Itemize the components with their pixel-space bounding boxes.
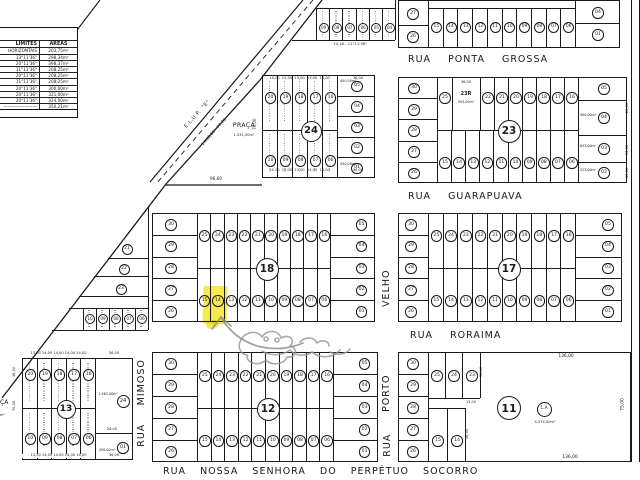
wall-line (337, 75, 338, 178)
wall-line (447, 408, 448, 462)
lot-number: 16 (566, 92, 578, 104)
wall-line (564, 130, 565, 183)
lot-number: 30 (407, 358, 419, 370)
wall-line (152, 257, 197, 258)
wall-line (493, 130, 494, 183)
lot-number: 29 (408, 104, 420, 116)
wall-line (337, 157, 375, 158)
wall-line (531, 8, 532, 48)
lot-number: 25 (431, 230, 443, 242)
block-number: 11 (497, 396, 521, 420)
lot-number: 07 (68, 433, 80, 445)
lot-number: 19 (281, 370, 293, 382)
street-name-mimoso-rua: RUA (137, 420, 147, 450)
lot-number: 15 (439, 157, 451, 169)
wall-line (575, 278, 622, 279)
area-value: 350,21m² (40, 104, 77, 109)
lot-number: 08 (295, 155, 307, 167)
wall-line (575, 213, 576, 322)
wall-line (292, 75, 293, 178)
praca-area-label: 1.531,00m² (224, 134, 264, 138)
lot-number: 11 (489, 295, 501, 307)
lot-number: 04 (385, 23, 395, 33)
lot-number: 03 (359, 402, 371, 414)
block-number: 18 (256, 258, 279, 281)
wall-line (148, 207, 149, 330)
wall-line (398, 162, 437, 163)
lot-number: 08 (534, 22, 545, 33)
wall-line (251, 352, 252, 462)
wall-line (398, 235, 428, 236)
block-number: 12 (257, 398, 280, 421)
lot-number: 15 (432, 435, 444, 447)
lot-number: 03 (351, 122, 363, 134)
lot-number: 10 (265, 295, 277, 307)
lot-number: 22 (475, 230, 487, 242)
wall-line (197, 352, 198, 462)
lot-number: 18 (295, 92, 307, 104)
wall-line (333, 418, 378, 419)
lot-number: 17 (310, 92, 322, 104)
wall-line (152, 300, 197, 301)
wall-line (80, 358, 81, 460)
lot-number: 18 (54, 369, 66, 381)
wall-line (52, 330, 148, 331)
areas-table-row: 20°11'36"398,37m² (0, 60, 77, 66)
wall-line (238, 352, 239, 462)
lot-number: 04 (351, 101, 363, 113)
lot-number: 20 (265, 92, 277, 104)
area-value: 208,25m² (40, 73, 77, 78)
lot-area-label: 4.274,00m² (530, 421, 560, 425)
lot-number: 30 (165, 219, 177, 231)
lot-number: 13 (468, 157, 480, 169)
wall-line (224, 352, 225, 462)
lot-number: 24 (448, 370, 460, 382)
areas-table-title-band (0, 28, 77, 40)
lot-number: 07 (345, 23, 355, 33)
wall-line (398, 257, 428, 258)
limites-value: 20°11'36" (0, 98, 40, 103)
lot-number: 27 (408, 146, 420, 158)
wall-line (369, 8, 370, 40)
wall-line (51, 358, 52, 460)
lot-number: 16 (83, 369, 95, 381)
lot-number: 07 (308, 435, 320, 447)
areas-table-row: ————————350,21m² (0, 103, 77, 109)
area-value: 398,37m² (40, 61, 77, 66)
lot-number: 21 (253, 370, 265, 382)
dimension-label: 14,10 13,00 13,00 13,00 13,00 (263, 169, 336, 173)
lot-number: 29 (165, 380, 177, 392)
lot-number: 04 (359, 380, 371, 392)
lot-number: 24 (445, 230, 457, 242)
lot-number: 05 (598, 83, 610, 95)
lot-number: 01 (592, 29, 604, 41)
area-value: 300,00m² (40, 86, 77, 91)
wall-line (277, 75, 278, 178)
wall-line (152, 440, 197, 441)
wall-line (451, 130, 452, 183)
dimension-label: 36,00 (13, 361, 17, 383)
areas-table-row: 20°11'36"321,00m² (0, 91, 77, 97)
lot-number: 21 (496, 92, 508, 104)
wall-line (575, 300, 622, 301)
wall-line (443, 8, 444, 48)
lot-number: 17 (308, 370, 320, 382)
wall-line (109, 308, 110, 330)
wall-line (479, 130, 480, 183)
dimension-label: 13,00 (461, 401, 481, 405)
wall-line (152, 396, 197, 397)
wall-line (83, 308, 84, 330)
lot-number: 12 (482, 157, 494, 169)
lot-number: 17 (548, 230, 560, 242)
lot-number: 06 (83, 433, 95, 445)
wall-line (95, 358, 96, 460)
lot-number: 09 (39, 433, 51, 445)
lot-number: 25 (199, 370, 211, 382)
lot-number: 21 (122, 244, 133, 255)
lot-number: 23 (116, 284, 127, 295)
lot-number: 10 (25, 433, 37, 445)
wall-line (428, 398, 480, 399)
lot-number: 24 (212, 230, 224, 242)
lot-number: 26 (405, 306, 417, 318)
lot-area-label: 450,00m² (340, 163, 357, 167)
lot-number: 13 (226, 295, 238, 307)
lot-number: 29 (407, 380, 419, 392)
lot-number: 25 (439, 92, 451, 104)
lot-number: 22 (239, 230, 251, 242)
lot-number: 07 (310, 155, 322, 167)
lot-number: 30 (165, 358, 177, 370)
dimension-label: 136,00 (550, 456, 590, 461)
lot-number: 29 (165, 241, 177, 253)
wall-line (516, 8, 517, 48)
street-name-guarapuava: RUA GUARAPUAVA (408, 192, 523, 202)
areas-table-row: 11°11'36"208,25m² (0, 66, 77, 72)
lot-number: 08 (54, 433, 66, 445)
lot-number: 20 (510, 92, 522, 104)
block-number: 23 (498, 120, 521, 143)
limites-value: 20°11'36" (0, 61, 40, 66)
areas-table: LIMITES AREAS HORIZONTAIS203,75m²13°11'3… (0, 27, 78, 118)
wall-line (398, 396, 428, 397)
dimension-label: 13,20 14,00 14,00 14,00 14,00 (22, 454, 95, 458)
wall-line (337, 116, 375, 117)
wall-line (262, 130, 337, 131)
lot-number: 22 (482, 92, 494, 104)
lot-number: 26 (408, 168, 420, 180)
wall-line (398, 25, 428, 26)
lot-number: 04 (602, 241, 614, 253)
lot-number: 18 (534, 230, 546, 242)
lot-number: 23 (226, 370, 238, 382)
lot-number: 06 (358, 23, 368, 33)
wall-line (398, 300, 428, 301)
block-number: 17 (498, 258, 521, 281)
praca-label: PRAÇA (226, 123, 262, 130)
dimension-label: 36,00 (344, 169, 372, 173)
wall-line (578, 100, 627, 101)
elup-label: E.L.U.P. "E" (165, 79, 231, 151)
lot-number: 17 (552, 92, 564, 104)
dimension-label: 136,00 (546, 355, 586, 360)
lot-area-label: 953,00m² (452, 101, 480, 105)
street-name-ponta-grossa: RUA PONTA GROSSA (408, 55, 548, 65)
lot-number: 25 (199, 230, 211, 242)
lot-number: 23 (460, 230, 472, 242)
lot-area-label: 523,00m² (580, 169, 596, 173)
street-name-mimoso: MIMOSO (137, 357, 147, 407)
wall-line (333, 352, 334, 462)
lot-number: 19 (524, 92, 536, 104)
lot-number: 29 (405, 241, 417, 253)
lot-number: 09 (319, 23, 329, 33)
lot-number: 20 (25, 369, 37, 381)
street-name-porto-velho: VELHO (382, 263, 392, 313)
limites-value: 20°11'36" (0, 73, 40, 78)
wall-line (536, 130, 537, 183)
wall-line (330, 257, 375, 258)
wall-line (135, 308, 136, 330)
wall-line (494, 77, 495, 130)
dimension-label: 96,60 (196, 177, 236, 182)
lot-number: 06 (563, 295, 575, 307)
lot-number: 22 (119, 264, 130, 275)
lot-number: 20 (504, 230, 516, 242)
lot-number: 21 (252, 230, 264, 242)
wall-line (631, 0, 632, 462)
areas-table-row: 11°11'36"208,25m² (0, 78, 77, 84)
dimension-label: 36,00 (97, 454, 131, 458)
lot-number: 12 (239, 295, 251, 307)
lot-number: 09 (519, 295, 531, 307)
lot-number: 20 (265, 230, 277, 242)
lot-number: 06 (321, 435, 333, 447)
lot-number: 05 (356, 219, 368, 231)
wall-line (398, 98, 437, 99)
lot-number: 19 (280, 92, 292, 104)
lot-area-label: 633,00m² (580, 145, 596, 149)
limites-value: ———————— (0, 104, 40, 109)
areas-table-row: 20°11'36"208,25m² (0, 72, 77, 78)
lot-number: 13 (460, 22, 471, 33)
lot-area-label: 1.563,00m² (96, 393, 120, 397)
lot-number: 17 (68, 369, 80, 381)
wall-line (395, 0, 396, 40)
limites-value: 11°11'36" (0, 67, 40, 72)
limites-header: LIMITES (0, 41, 40, 47)
wall-line (330, 213, 331, 322)
lot-number: 16 (319, 230, 331, 242)
lot-number: 20 (267, 370, 279, 382)
lot-number: 16 (321, 370, 333, 382)
lot-number: 11 (496, 157, 508, 169)
lot-number: 23 (226, 230, 238, 242)
wall-line (152, 235, 197, 236)
lot-number: 01 (356, 306, 368, 318)
dimension-label: 36,00 (466, 423, 470, 445)
areas-table-row: 13°11'36"298,34m² (0, 54, 77, 60)
areas-header: AREAS (40, 41, 77, 47)
lot-number: 10 (504, 22, 515, 33)
wall-line (578, 135, 627, 136)
areas-table-row: HORIZONTAIS203,75m² (0, 47, 77, 53)
area-value: 203,75m² (40, 48, 77, 53)
wall-line (457, 8, 458, 48)
lot-number: 13 (460, 295, 472, 307)
limites-value: 13°11'36" (0, 55, 40, 60)
lot-number: 28 (405, 263, 417, 275)
plat-map: LIMITES AREAS HORIZONTAIS203,75m²13°11'3… (0, 0, 640, 480)
lot-number: 27 (405, 285, 417, 297)
lot-number: 02 (602, 285, 614, 297)
street-name-roraima: RUA RORAIMA (410, 331, 501, 341)
wall-line (94, 276, 148, 277)
lot-number: 28 (165, 263, 177, 275)
praca-fragment-label: ÇA (0, 400, 8, 407)
wall-line (462, 352, 463, 398)
lot-number: 11 (490, 22, 501, 33)
wall-line (337, 96, 375, 97)
dimension-label: 13,00 14,00 14,00 14,00 14,00 (22, 352, 95, 356)
wall-line (398, 278, 428, 279)
lot-number: 06 (137, 314, 148, 325)
lot-number: 15 (199, 435, 211, 447)
lot-number: 08 (292, 295, 304, 307)
wall-line (522, 130, 523, 183)
lot-number: 07 (124, 314, 135, 325)
block-number: 13 (57, 400, 76, 419)
lot-label: 23R (454, 92, 478, 98)
lot-number: 19 (519, 230, 531, 242)
lot-number: 08 (294, 435, 306, 447)
wall-line (575, 0, 576, 48)
limites-value: 11°11'36" (0, 79, 40, 84)
lot-number: 09 (279, 295, 291, 307)
limites-value: 20°11'36" (0, 92, 40, 97)
lot-number: 06 (563, 22, 574, 33)
wall-line (487, 8, 488, 48)
lot-number: 11 (253, 435, 265, 447)
wall-line (536, 77, 537, 130)
lot-number: 19 (39, 369, 51, 381)
area-value: 298,34m² (40, 55, 77, 60)
lot-number: 27 (165, 424, 177, 436)
lot-number: 04 (592, 7, 604, 19)
lot-number: 21 (489, 230, 501, 242)
lot-number: 12 (475, 22, 486, 33)
lot-number: 18 (294, 370, 306, 382)
lot-number: 02 (351, 142, 363, 154)
wall-line (398, 440, 428, 441)
wall-line (428, 352, 429, 462)
areas-table-header: LIMITES AREAS (0, 40, 77, 47)
lot-number: 25 (431, 370, 443, 382)
wall-line (398, 374, 428, 375)
dimension-label: 36,00 (344, 77, 372, 81)
wall-line (550, 77, 551, 130)
dimension-label: 26,00 (97, 428, 127, 432)
limites-value: HORIZONTAIS (0, 48, 40, 53)
lot-number: 14 (451, 435, 463, 447)
wall-line (342, 8, 343, 40)
lot-number: 06 (319, 295, 331, 307)
lot-number: 07 (305, 295, 317, 307)
lot-number: 23 (466, 370, 478, 382)
dimension-label: 36,00 (97, 352, 131, 356)
wall-line (152, 278, 197, 279)
wall-line (333, 396, 378, 397)
lot-number: 16 (563, 230, 575, 242)
wall-line (108, 258, 148, 259)
lot-number: 08 (332, 23, 342, 33)
lot-number: 07 (548, 22, 559, 33)
lot-number: 10 (504, 295, 516, 307)
wall-line (578, 77, 579, 183)
area-value: 324,00m² (40, 98, 77, 103)
lot-number: 15 (431, 295, 443, 307)
lot-number: 16 (325, 92, 337, 104)
dimension-label: 36,00 (480, 361, 484, 383)
wall-line (322, 75, 323, 178)
wall-line (465, 130, 466, 183)
lot-number: 05 (602, 219, 614, 231)
wall-line (398, 119, 437, 120)
wall-line (575, 257, 622, 258)
areas-table-footer-band (0, 109, 77, 117)
wall-line (329, 8, 330, 40)
wall-line (306, 352, 307, 462)
lot-number: 26 (165, 446, 177, 458)
lot-number: 05 (371, 23, 381, 33)
lot-area-label: 900,00m² (580, 114, 596, 118)
wall-line (382, 8, 383, 40)
wall-line (564, 77, 565, 130)
lot-number: 30 (405, 219, 417, 231)
lot-number: 26 (407, 31, 419, 43)
lot-number: 09 (281, 435, 293, 447)
lot-number: 1.A (537, 402, 552, 417)
lot-number: 22 (240, 370, 252, 382)
lot-number: 12 (240, 435, 252, 447)
wall-line (546, 8, 547, 48)
wall-line (95, 433, 133, 434)
area-value: 321,00m² (40, 92, 77, 97)
lot-number: 28 (408, 125, 420, 137)
dimension-label: 14,10 13,50 13,00 13,00 13,00 (263, 77, 336, 81)
lot-number: 14 (446, 22, 457, 33)
lot-number: 17 (305, 230, 317, 242)
dimension-label: 75,00 (622, 391, 627, 417)
wall-line (79, 296, 148, 297)
lot-number: 24 (213, 370, 225, 382)
areas-table-row: 20°11'36"324,00m² (0, 97, 77, 103)
highlight-marker (203, 286, 228, 325)
lot-number: 13 (226, 435, 238, 447)
lot-number: 30 (408, 83, 420, 95)
lot-number: 09 (280, 155, 292, 167)
wall-line (330, 278, 375, 279)
dimension-label: 70,00 (13, 395, 17, 417)
lot-number: 01 (602, 306, 614, 318)
lot-number: 01 (359, 446, 371, 458)
lot-number: 06 (566, 157, 578, 169)
lot-number: 07 (552, 157, 564, 169)
lot-number: 19 (279, 230, 291, 242)
